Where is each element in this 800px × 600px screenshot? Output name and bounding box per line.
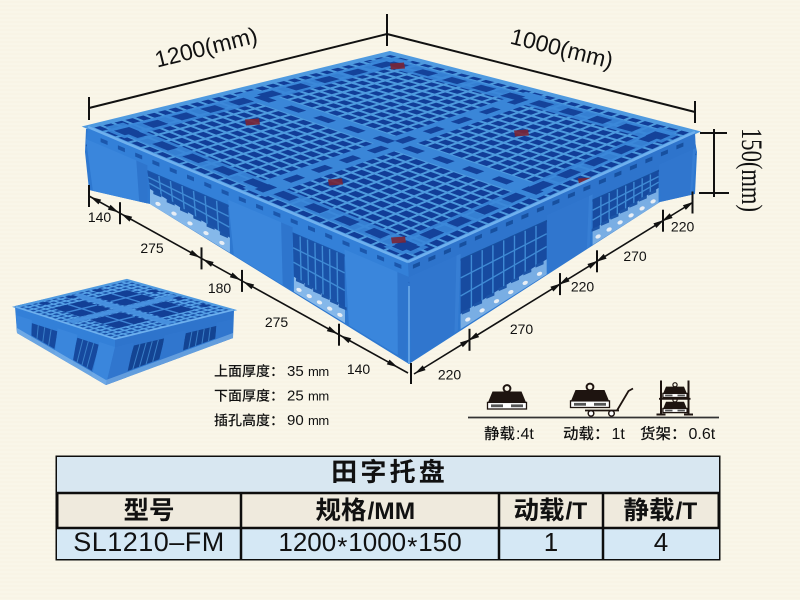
svg-text:SL1210–FM: SL1210–FM xyxy=(73,527,225,557)
svg-text:270: 270 xyxy=(623,248,647,264)
svg-text:220: 220 xyxy=(671,219,695,235)
svg-text:150(mm): 150(mm) xyxy=(735,128,768,212)
svg-text:mm: mm xyxy=(308,364,329,379)
svg-text:/MM: /MM xyxy=(368,498,416,525)
svg-text:270: 270 xyxy=(510,321,534,337)
svg-text:1: 1 xyxy=(544,527,558,557)
svg-text:25: 25 xyxy=(287,388,304,405)
svg-text:*: * xyxy=(337,532,347,562)
svg-text:0.6t: 0.6t xyxy=(689,426,716,443)
svg-text:140: 140 xyxy=(88,209,112,225)
svg-text:4: 4 xyxy=(654,527,668,557)
svg-text:220: 220 xyxy=(438,367,462,383)
svg-text:1000: 1000 xyxy=(348,527,406,557)
svg-text:90: 90 xyxy=(287,412,304,429)
svg-text:1t: 1t xyxy=(612,426,626,443)
svg-text:1200: 1200 xyxy=(278,527,336,557)
svg-text:275: 275 xyxy=(140,240,164,256)
svg-text:275: 275 xyxy=(265,314,289,330)
svg-text:mm: mm xyxy=(308,413,329,428)
svg-text:150: 150 xyxy=(418,527,461,557)
svg-text:/T: /T xyxy=(566,498,588,525)
svg-text:220: 220 xyxy=(571,279,595,295)
svg-text:mm: mm xyxy=(308,389,329,404)
svg-text:180: 180 xyxy=(208,280,232,296)
svg-text:*: * xyxy=(407,532,417,562)
svg-text:/T: /T xyxy=(676,498,698,525)
svg-text:35: 35 xyxy=(287,363,304,380)
svg-text::4t: :4t xyxy=(516,426,534,443)
svg-text:140: 140 xyxy=(347,361,371,377)
